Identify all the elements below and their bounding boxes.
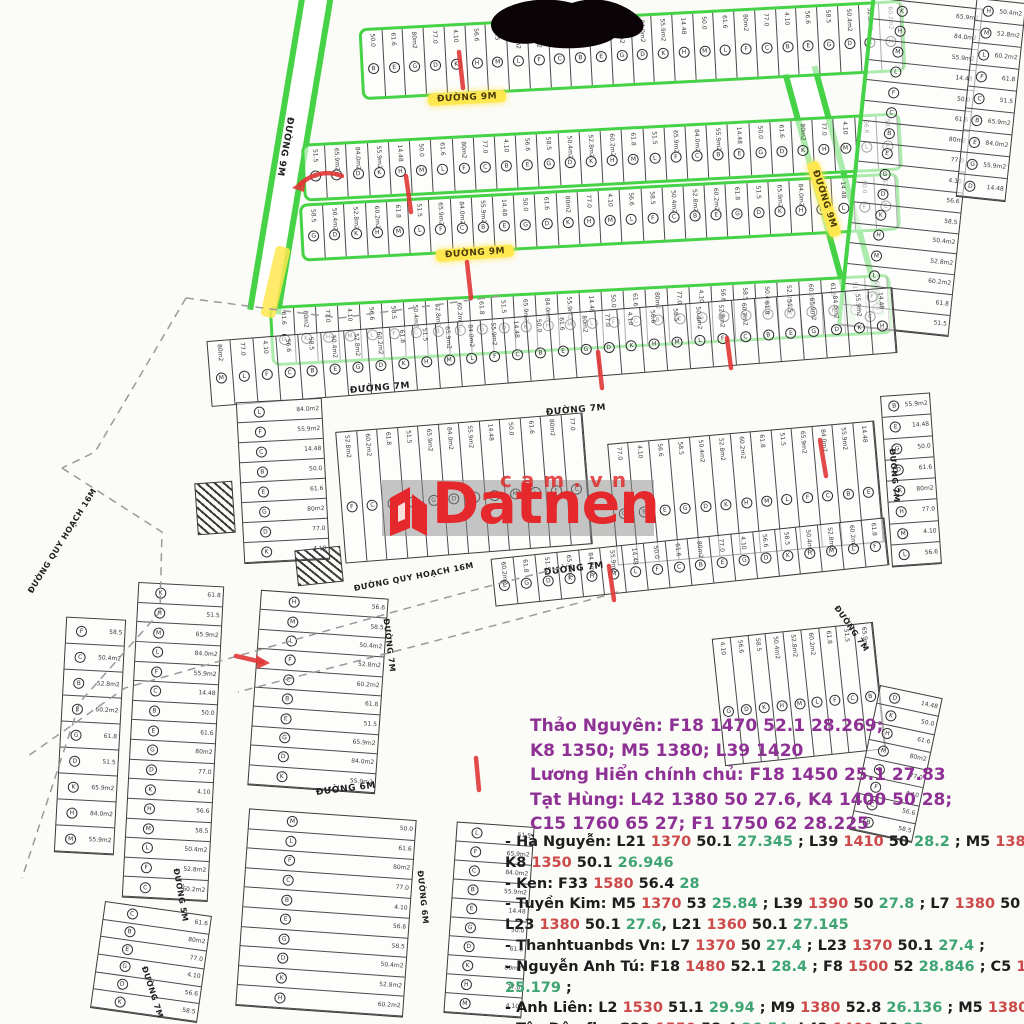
plot-area-value: 50.0 bbox=[309, 465, 323, 472]
plot-area-value: 60.2m2 bbox=[738, 436, 746, 459]
listing-text: 56.4 bbox=[634, 876, 680, 892]
plot-marker: K bbox=[720, 498, 732, 510]
plot-area-value: 50.0 bbox=[369, 33, 376, 47]
plot-marker: G bbox=[543, 158, 555, 170]
plot-cell: B52.8m2 bbox=[683, 185, 707, 238]
plot-cell: L56.6 bbox=[892, 542, 941, 567]
plot-marker: G bbox=[279, 732, 291, 744]
unit-price-value: 27.4 bbox=[766, 938, 802, 954]
plot-area-value: 61.6 bbox=[194, 920, 208, 928]
plot-area-value: 84.0m2 bbox=[351, 759, 374, 767]
plot-marker: B bbox=[782, 41, 794, 53]
plot-area-value: 58.5 bbox=[182, 1008, 196, 1016]
plot-area-value: 55.9m2 bbox=[983, 162, 1007, 170]
plot-marker: E bbox=[969, 136, 981, 148]
plot-area-value: 50.4m2 bbox=[359, 643, 382, 651]
plot-area-value: 52.8m2 bbox=[587, 134, 594, 157]
plot-area-value: 52.8m2 bbox=[343, 435, 351, 458]
plot-cell: E51.5 bbox=[304, 145, 328, 198]
plot-marker: M bbox=[215, 372, 227, 384]
plot-marker: F bbox=[261, 369, 273, 381]
plot-cell: M50.0 bbox=[410, 140, 434, 193]
plot-marker: M bbox=[699, 46, 711, 58]
listing-text: 52.8 bbox=[841, 1000, 887, 1016]
listing-text: 50.1 bbox=[572, 855, 618, 871]
plot-cell: K52.8m2 bbox=[344, 203, 368, 256]
plot-marker: G bbox=[409, 61, 421, 73]
plot-area-value: 50.0 bbox=[535, 319, 542, 333]
plot-area-value: 84.0m2 bbox=[831, 295, 839, 318]
plot-area-value: 56.6 bbox=[371, 605, 385, 612]
plot-area-value: 50.4m2 bbox=[845, 9, 852, 32]
plot-cell: H60.2m2 bbox=[366, 202, 390, 255]
plot-marker: H bbox=[776, 700, 788, 712]
plot-marker: G bbox=[70, 729, 82, 741]
plot-marker: F bbox=[533, 54, 545, 66]
plot-area-value: 52.8m2 bbox=[358, 662, 381, 670]
plot-marker: G bbox=[352, 361, 364, 373]
plot-marker: D bbox=[844, 38, 856, 50]
plot-marker: D bbox=[69, 755, 81, 767]
plot-cell: M55.9m2 bbox=[55, 825, 114, 854]
plot-area-value: 55.9m2 bbox=[479, 200, 486, 223]
plot-area-value: 61.6 bbox=[280, 311, 287, 325]
plot-area-value: 56.6 bbox=[472, 28, 479, 42]
plot-area-value: 50.4m2 bbox=[694, 306, 702, 329]
plot-marker: F bbox=[458, 163, 470, 175]
plot-marker: G bbox=[521, 577, 533, 589]
price-value: 1530 bbox=[623, 1000, 663, 1016]
plot-cell: B4.10 bbox=[495, 135, 519, 188]
plot-marker: L bbox=[253, 406, 265, 418]
plot-cell: G61.8 bbox=[60, 722, 119, 751]
plot-area-value: 80m2 bbox=[307, 505, 325, 512]
plot-area-value: 50.4m2 bbox=[999, 9, 1023, 17]
plot-area-value: 56.6 bbox=[368, 307, 375, 321]
plot-marker: D bbox=[637, 49, 649, 61]
plot-area-value: 80m2 bbox=[916, 486, 934, 493]
plot-area-value: 61.8 bbox=[869, 522, 876, 536]
plot-area-value: 60.2m2 bbox=[364, 433, 372, 456]
plot-marker: F bbox=[346, 501, 358, 513]
plot-area-value: 80m2 bbox=[580, 315, 587, 333]
plot-marker: L bbox=[838, 203, 850, 215]
plot-marker: E bbox=[310, 170, 322, 182]
listing-text: - Thanhtuanbds Vn: L7 bbox=[505, 938, 695, 954]
plot-area-value: 61.6 bbox=[310, 485, 324, 492]
plot-area-value: 4.10 bbox=[719, 642, 726, 656]
plot-marker: K bbox=[114, 996, 126, 1008]
plot-marker: C bbox=[74, 651, 86, 663]
plot-area-value: 84.0m2 bbox=[194, 651, 217, 658]
plot-marker: C bbox=[366, 500, 378, 512]
plot-area-value: 61.8 bbox=[398, 330, 405, 344]
unit-price-value: 28.846 bbox=[919, 959, 975, 975]
plot-marker: K bbox=[782, 549, 794, 561]
plot-marker: B bbox=[575, 52, 587, 64]
plot-area-value: 61.8 bbox=[825, 630, 832, 644]
plot-cell: H77.0 bbox=[578, 191, 602, 244]
price-value: 1380 bbox=[995, 834, 1024, 850]
plot-area-value: 61.8 bbox=[733, 187, 740, 201]
plot-marker: D bbox=[877, 189, 889, 201]
unit-price-value: 25.84 bbox=[712, 896, 758, 912]
agent-line: - Thanhtuanbds Vn: L7 1370 50 27.4 ; L23… bbox=[505, 936, 1020, 957]
plot-area-value: 58.5 bbox=[493, 27, 500, 41]
plot-area-value: 52.8m2 bbox=[534, 25, 541, 48]
plot-marker: B bbox=[281, 894, 293, 906]
plot-cell: D51.5 bbox=[747, 182, 771, 235]
plot-marker: H bbox=[740, 497, 752, 509]
plot-area-value: 65.9m2 bbox=[352, 740, 375, 748]
plot-marker: H bbox=[678, 47, 690, 59]
unit-price-value: 25.179 bbox=[505, 980, 561, 996]
plot-cell: L61.6 bbox=[431, 139, 455, 192]
price-value: 1350 bbox=[531, 855, 571, 871]
plot-area-value: 50.0 bbox=[609, 294, 616, 308]
plot-cell: M61.8 bbox=[387, 201, 411, 254]
unit-price-value: 26.946 bbox=[618, 855, 674, 871]
plot-marker: L bbox=[513, 55, 525, 67]
plot-marker: B bbox=[888, 400, 900, 412]
plot-cell: C77.0 bbox=[474, 137, 498, 190]
plot-area-value: 80m2 bbox=[195, 749, 213, 756]
agent-line: - Nguyễn Anh Tú: F18 1480 52.1 28.4 ; F8… bbox=[505, 957, 1020, 978]
plot-area-value: 51.5 bbox=[499, 300, 506, 314]
plot-area-value: 58.5 bbox=[754, 638, 761, 652]
plot-marker: M bbox=[671, 336, 683, 348]
plot-area-value: 65.9m2 bbox=[987, 118, 1011, 126]
plot-area-value: 50.4m2 bbox=[380, 962, 403, 970]
listing-text: - Nguyễn Anh Tú: F18 bbox=[505, 959, 685, 975]
plot-marker: E bbox=[717, 556, 729, 568]
listing-text: ; M5 bbox=[942, 1000, 987, 1016]
plot-marker: L bbox=[899, 549, 911, 561]
price-value: 1380 bbox=[800, 1000, 840, 1016]
plot-area-value: 4.10 bbox=[739, 536, 746, 550]
plot-marker: F bbox=[151, 666, 163, 678]
plot-area-value: 51.5 bbox=[778, 432, 785, 446]
plot-area-value: 77.0 bbox=[395, 885, 409, 892]
plot-marker: G bbox=[679, 502, 691, 514]
plot-area-value: 84.0m2 bbox=[466, 324, 474, 347]
plot-area-value: 51.5 bbox=[596, 22, 603, 36]
plot-marker: E bbox=[785, 327, 797, 339]
plot-area-value: 77.0 bbox=[481, 140, 488, 154]
plot-marker: F bbox=[976, 70, 988, 82]
plot-area-value: 55.9m2 bbox=[375, 146, 382, 169]
plot-area-value: 61.6 bbox=[777, 124, 784, 138]
plot-area-value: 60.2m2 bbox=[95, 707, 118, 714]
plot-area-value: 52.8m2 bbox=[352, 207, 359, 230]
plot-marker: C bbox=[283, 674, 295, 686]
plot-area-value: 80m2 bbox=[460, 141, 467, 159]
plot-area-value: 14.48 bbox=[396, 144, 403, 161]
plot-marker: K bbox=[68, 781, 80, 793]
plot-marker: G bbox=[118, 961, 130, 973]
plot-area-value: 60.2m2 bbox=[807, 632, 815, 656]
plot-area-value: 77.0 bbox=[922, 507, 936, 514]
plot-cell: C60.2m2 bbox=[123, 877, 208, 901]
plot-marker: E bbox=[280, 914, 292, 926]
plot-area-value: 51.5 bbox=[415, 203, 422, 217]
plot-marker: L bbox=[414, 225, 426, 237]
plot-area-value: 55.9m2 bbox=[193, 671, 216, 678]
plot-marker: H bbox=[154, 607, 166, 619]
plot-marker: E bbox=[258, 486, 270, 498]
plot-marker: F bbox=[717, 333, 729, 345]
plot-block: H56.6M58.5L50.4m2F52.8m2C60.2m2B61.8E51.… bbox=[247, 590, 388, 794]
plot-area-value: 52.8m2 bbox=[97, 681, 120, 688]
plot-area-value: 61.6 bbox=[558, 317, 565, 331]
plot-area-value: 4.10 bbox=[783, 12, 790, 26]
plot-marker: E bbox=[329, 363, 341, 375]
plot-marker: M bbox=[492, 57, 504, 69]
plot-area-value: 50.4m2 bbox=[330, 208, 337, 231]
plot-marker: H bbox=[460, 979, 472, 991]
plot-marker: G bbox=[464, 922, 476, 934]
listing-text: L23 bbox=[505, 917, 539, 933]
plot-area-value: 55.9m2 bbox=[466, 425, 474, 448]
plot-area-value: 50.4m2 bbox=[697, 440, 705, 463]
plot-area-value: 56.6 bbox=[393, 924, 407, 931]
plot-marker: H bbox=[648, 338, 660, 350]
listing-text: 50.1 bbox=[892, 938, 938, 954]
plot-marker: G bbox=[259, 506, 271, 518]
plot-marker: C bbox=[512, 349, 524, 361]
plot-marker: H bbox=[274, 992, 286, 1004]
listing-text: 50 bbox=[995, 896, 1024, 912]
plot-area-value: 50.0 bbox=[399, 826, 413, 833]
plot-marker: H bbox=[66, 807, 78, 819]
plot-area-value: 84.0m2 bbox=[458, 201, 465, 224]
plot-area-value: 4.10 bbox=[923, 528, 937, 535]
plot-area-value: 65.9m2 bbox=[617, 20, 624, 43]
agent-line: - Tuyền Kim: M5 1370 53 25.84 ; L39 1390… bbox=[505, 894, 1020, 915]
plot-marker: M bbox=[892, 46, 904, 58]
plot-area-value: 80m2 bbox=[564, 196, 571, 214]
plot-marker: E bbox=[734, 148, 746, 160]
plot-area-value: 65.9m2 bbox=[425, 428, 433, 451]
plot-area-value: 65.9m2 bbox=[195, 632, 218, 639]
plot-area-value: 14.48 bbox=[304, 445, 321, 452]
plot-area-value: 60.2m2 bbox=[555, 24, 562, 47]
plot-marker: F bbox=[470, 846, 482, 858]
plot-cell: M4.10 bbox=[599, 190, 623, 243]
plot-marker: E bbox=[148, 725, 160, 737]
plot-marker: G bbox=[738, 554, 750, 566]
unit-price-value: 26.136 bbox=[886, 1000, 942, 1016]
plot-area-value: 60.2m2 bbox=[712, 188, 719, 211]
price-value: 1380 bbox=[988, 1000, 1024, 1016]
plot-area-value: 60.2m2 bbox=[499, 561, 507, 585]
plot-area-value: 84.0m2 bbox=[296, 406, 319, 413]
plot-area-value: 56.6 bbox=[627, 192, 634, 206]
plot-marker: L bbox=[811, 696, 823, 708]
plot-area-value: 14.48 bbox=[877, 292, 884, 310]
plot-area-value: 58.5 bbox=[824, 10, 831, 24]
plot-marker: C bbox=[468, 865, 480, 877]
plot-marker: M bbox=[287, 616, 299, 628]
plot-marker: K bbox=[658, 48, 670, 60]
price-value: 1370 bbox=[695, 938, 735, 954]
plot-marker: K bbox=[854, 322, 866, 334]
plot-marker: K bbox=[451, 59, 463, 71]
plot-marker: G bbox=[308, 230, 320, 242]
plot-area-value: 50.4m2 bbox=[772, 636, 780, 660]
plot-area-value: 55.9m2 bbox=[297, 425, 320, 432]
plot-marker: F bbox=[829, 694, 841, 706]
plot-marker: E bbox=[881, 148, 893, 160]
plot-area-value: 50.0 bbox=[521, 198, 528, 212]
plot-marker: F bbox=[651, 563, 663, 575]
listing-text: ; L23 bbox=[802, 938, 852, 954]
plot-area-value: 58.5 bbox=[782, 532, 789, 546]
plot-area-value: 60.2m2 bbox=[608, 133, 615, 156]
plot-area-value: 52.8m2 bbox=[352, 333, 360, 356]
plot-cell: H14.48 bbox=[389, 141, 413, 194]
plot-cell: D84.0m2 bbox=[346, 143, 370, 196]
plot-area-value: 61.6 bbox=[389, 32, 396, 46]
plot-marker: E bbox=[659, 504, 671, 516]
plot-marker: C bbox=[974, 92, 986, 104]
plot-cell: F80m2 bbox=[452, 138, 476, 191]
plot-area-value: 4.10 bbox=[841, 121, 848, 135]
plot-marker: H bbox=[896, 506, 908, 518]
plot-marker: B bbox=[149, 705, 161, 717]
plot-area-value: 60.2m2 bbox=[182, 886, 205, 893]
plot-area-value: 60.2m2 bbox=[994, 53, 1018, 61]
plot-marker: D bbox=[260, 526, 272, 538]
plot-marker: C bbox=[126, 908, 138, 920]
agent-line: - Hà Nguyễn: L21 1370 50.1 27.345 ; L39 … bbox=[505, 832, 1020, 853]
plot-marker: C bbox=[139, 882, 151, 894]
plot-area-value: 58.5 bbox=[307, 337, 314, 351]
plot-marker: H bbox=[583, 216, 595, 228]
plot-marker: K bbox=[626, 340, 638, 352]
plot-area-value: 50.4m2 bbox=[804, 529, 812, 553]
plot-area-value: 55.9m2 bbox=[840, 427, 848, 450]
plot-area-value: 60.2m2 bbox=[848, 525, 856, 549]
plot-area-value: 4.10 bbox=[636, 445, 643, 459]
plot-marker: C bbox=[740, 331, 752, 343]
plot-block: K61.8H51.5M65.9m2L84.0m2F55.9m2C14.48B50… bbox=[122, 582, 224, 902]
plot-marker: K bbox=[462, 960, 474, 972]
plot-area-value: 61.8 bbox=[576, 23, 583, 37]
plot-area-value: 4.10 bbox=[606, 193, 613, 207]
plot-area-value: 50.0 bbox=[700, 16, 707, 30]
plot-marker: C bbox=[554, 53, 566, 65]
plot-area-value: 58.5 bbox=[676, 441, 683, 455]
plot-marker: L bbox=[285, 835, 297, 847]
plot-area-value: 52.8m2 bbox=[930, 258, 954, 266]
road-label-9m: ĐƯỜNG 9M bbox=[275, 116, 295, 177]
plot-area-value: 60.2m2 bbox=[740, 303, 748, 326]
plot-area-value: 61.8 bbox=[758, 434, 765, 448]
listing-text: ; C5 bbox=[975, 959, 1017, 975]
listing-text: 50 bbox=[848, 896, 878, 912]
plot-marker: F bbox=[887, 87, 899, 99]
plot-marker: M bbox=[605, 215, 617, 227]
plot-cell: K55.9m2 bbox=[368, 142, 392, 195]
plot-area-value: 51.5 bbox=[206, 613, 220, 620]
plot-area-value: 77.0 bbox=[603, 313, 610, 327]
listing-text: - Hà Nguyễn: L21 bbox=[505, 834, 651, 850]
plot-marker: B bbox=[971, 114, 983, 126]
plot-area-value: 80m2 bbox=[548, 419, 555, 437]
plot-area-value: 50.0 bbox=[201, 711, 215, 718]
plot-area-value: 55.9m2 bbox=[905, 401, 928, 409]
plot-area-value: 51.5 bbox=[650, 131, 657, 145]
listing-text: ; M5 bbox=[950, 834, 995, 850]
plot-area-value: 65.9m2 bbox=[672, 130, 679, 153]
plot-cell: G65.9m2 bbox=[325, 144, 349, 197]
plot-cell: H14.48 bbox=[868, 288, 896, 354]
plot-area-value: 77.0 bbox=[324, 309, 331, 323]
plot-marker: L bbox=[471, 827, 483, 839]
plot-marker: F bbox=[284, 655, 296, 667]
agent-line: - Ken: F33 1580 56.4 28 bbox=[505, 874, 1020, 895]
plot-marker: F bbox=[802, 491, 814, 503]
plot-marker: E bbox=[522, 159, 534, 171]
plot-area-value: 14.48 bbox=[839, 181, 846, 198]
listing-text: ; M9 bbox=[755, 1000, 800, 1016]
listing-text: - Tuyền Kim: M5 bbox=[505, 896, 641, 912]
plot-marker: E bbox=[280, 713, 292, 725]
plot-marker: C bbox=[150, 686, 162, 698]
plot-area-value: 56.6 bbox=[649, 310, 656, 324]
plot-area-value: 61.6 bbox=[200, 730, 214, 737]
plot-area-value: 61.6 bbox=[919, 464, 933, 471]
cadastral-map: B50.0E61.6G80m2D77.0K4.10H56.6M58.5L50.4… bbox=[0, 0, 1024, 1024]
plot-area-value: 58.5 bbox=[109, 629, 123, 636]
plot-area-value: 55.9m2 bbox=[854, 294, 862, 317]
plot-marker: B bbox=[883, 127, 895, 139]
plot-area-value: 14.48 bbox=[920, 701, 938, 710]
plot-area-value: 61.8 bbox=[384, 432, 391, 446]
plot-area-value: 4.10 bbox=[394, 904, 408, 911]
plot-area-value: 61.8 bbox=[521, 559, 528, 573]
plot-marker: L bbox=[978, 48, 990, 60]
plot-area-value: 52.8m2 bbox=[183, 867, 206, 874]
plot-marker: B bbox=[73, 677, 85, 689]
plot-marker: C bbox=[822, 490, 834, 502]
plot-marker: F bbox=[489, 351, 501, 363]
plot-marker: H bbox=[872, 229, 884, 241]
plot-marker: B bbox=[842, 488, 854, 500]
plot-area-value: 84.0m2 bbox=[797, 183, 804, 206]
plot-area-value: 77.0 bbox=[238, 342, 245, 356]
price-value: 1360 bbox=[707, 917, 747, 933]
plot-area-value: 61.6 bbox=[398, 846, 412, 853]
plot-area-value: 80m2 bbox=[393, 865, 411, 872]
plot-area-value: 84.0m2 bbox=[819, 429, 827, 452]
hatched-parcel bbox=[294, 546, 344, 587]
plot-area-value: 50.4m2 bbox=[932, 238, 956, 246]
price-value: 1580 bbox=[593, 876, 633, 892]
price-value: 1370 bbox=[852, 938, 892, 954]
plot-area-value: 14.48 bbox=[860, 425, 867, 443]
plot-area-value: 84.0m2 bbox=[638, 19, 645, 42]
unit-price-value: 27.345 bbox=[737, 834, 793, 850]
plot-cell: E56.6 bbox=[516, 134, 540, 187]
plot-area-value: 51.5 bbox=[421, 328, 428, 342]
plot-area-value: 84.0m2 bbox=[90, 811, 113, 818]
plot-marker: F bbox=[140, 862, 152, 874]
road-label-qh16m: ĐƯỜNG QUY HOẠCH 16M bbox=[353, 561, 474, 593]
unit-price-value: 28 bbox=[679, 876, 699, 892]
unit-price-value: 27.8 bbox=[879, 896, 915, 912]
